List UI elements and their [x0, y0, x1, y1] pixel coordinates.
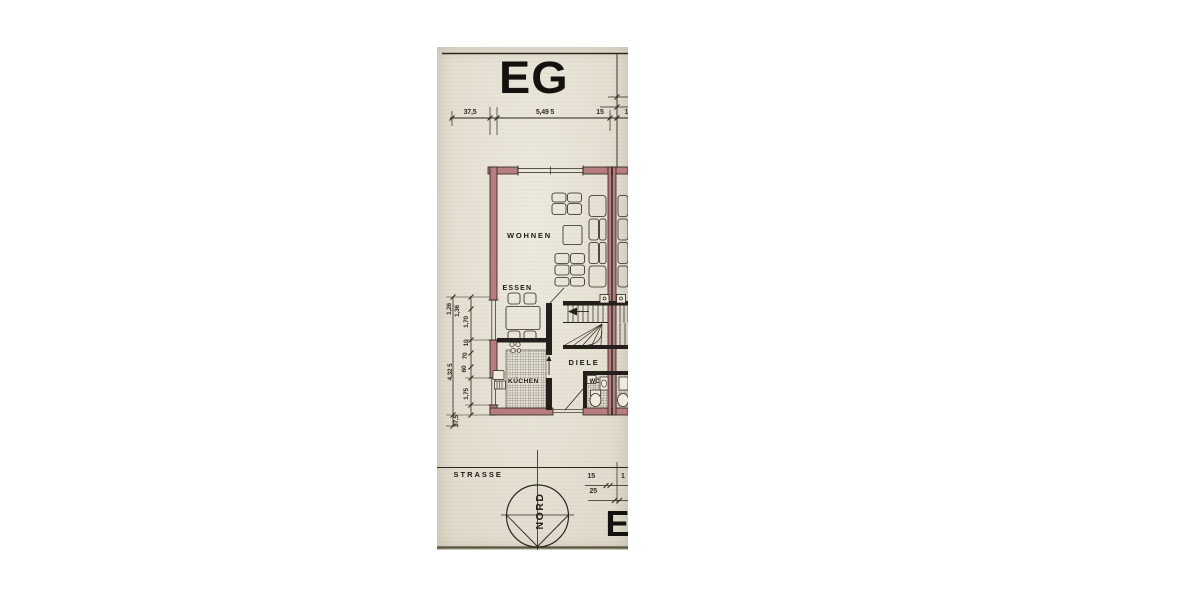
room-label-kueche: KÜCHEN: [508, 379, 539, 386]
room-label-essen: ESSEN: [503, 285, 533, 292]
dim-left-4: 10: [464, 340, 471, 347]
dim-left-6: 60: [462, 366, 469, 373]
kitchen-fittings: [493, 342, 552, 408]
dim-left-3: 1,70: [464, 316, 471, 328]
dim-left-7: 4,32 5: [448, 364, 455, 381]
dim-left-8: 1,75: [464, 388, 471, 400]
room-label-diele: DIELE: [569, 359, 600, 367]
street-label: STRASSE: [454, 471, 503, 479]
room-label-wohnen: WOHNEN: [507, 232, 552, 240]
dim-left-1: 1,26: [447, 303, 454, 315]
floorplan-sheet: EG 37,5 5,49 5 15 1 1,26 1,36 1,70 10 70…: [437, 47, 628, 550]
dining-set: [506, 293, 540, 341]
dim-left-5: 70: [463, 353, 470, 360]
dim-top-1: 37,5: [457, 109, 483, 116]
dim-left-9: 37,5: [454, 415, 461, 427]
site-lines: [437, 450, 628, 550]
dim-top-2: 5,49 5: [525, 109, 565, 116]
dim-bottom-3: 25: [590, 488, 597, 495]
dim-top-4: 1: [622, 109, 629, 116]
sofa-group: [552, 193, 628, 287]
room-label-wc: WC: [590, 379, 600, 385]
partial-floor-label: EI: [606, 506, 629, 542]
dim-bottom-2: 1: [621, 473, 625, 480]
north-label: NORD: [535, 493, 546, 530]
dim-bottom-1: 15: [588, 473, 595, 480]
dim-left-2: 1,36: [455, 305, 462, 317]
floor-title: EG: [499, 55, 569, 100]
dim-top-3: 15: [590, 109, 610, 116]
screenshot-canvas: EG 37,5 5,49 5 15 1 1,26 1,36 1,70 10 70…: [0, 0, 1200, 600]
